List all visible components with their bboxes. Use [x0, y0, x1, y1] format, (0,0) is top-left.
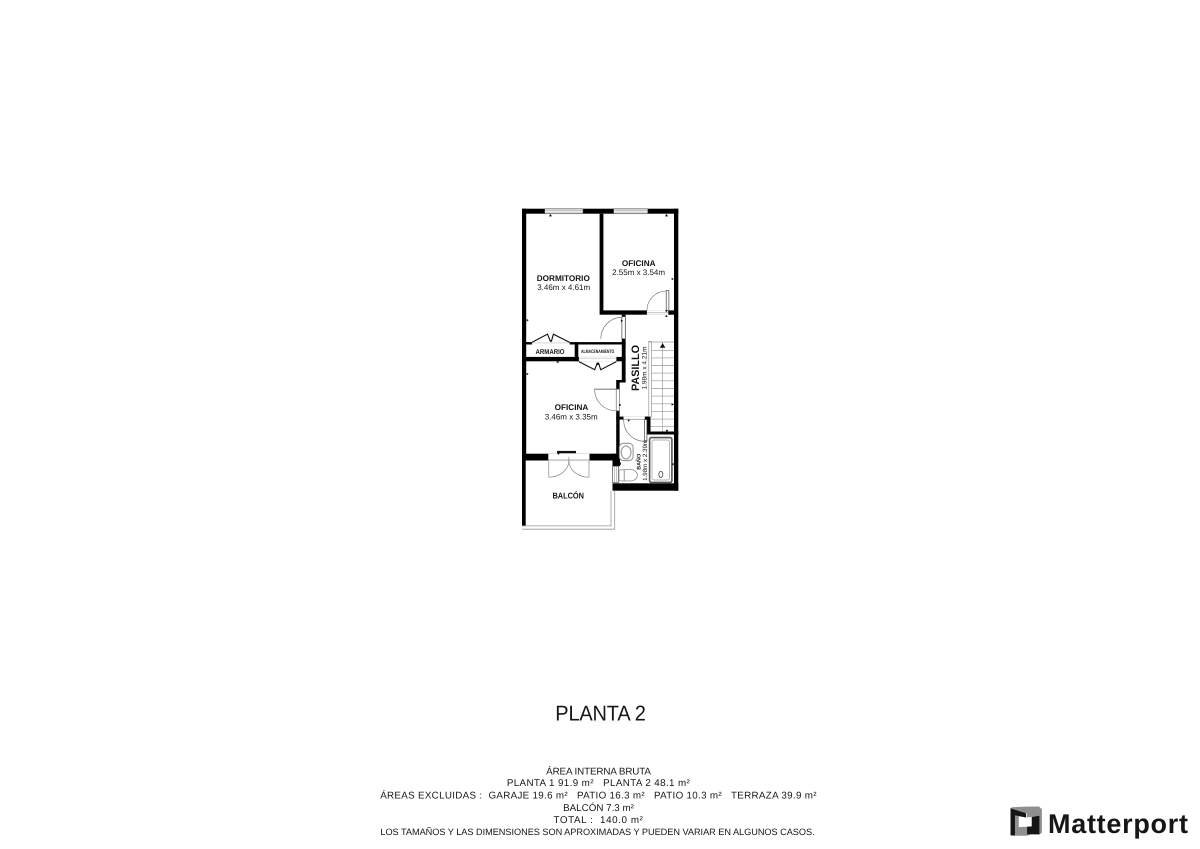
- svg-text:ÁREA INTERNA BRUTA: ÁREA INTERNA BRUTA: [546, 766, 651, 778]
- svg-text:3.46m x 4.61m: 3.46m x 4.61m: [537, 283, 590, 292]
- svg-text:1.98m x 2.39m: 1.98m x 2.39m: [642, 440, 649, 481]
- svg-text:BALCÓN: BALCÓN: [552, 490, 584, 500]
- svg-text:LOS TAMAÑOS Y LAS DIMENSIONES: LOS TAMAÑOS Y LAS DIMENSIONES SON APROXI…: [380, 826, 814, 837]
- svg-text:ALMACENAMIENTO: ALMACENAMIENTO: [581, 349, 614, 355]
- svg-text:ARMARIO: ARMARIO: [535, 349, 565, 356]
- svg-text:OFICINA: OFICINA: [555, 403, 589, 412]
- svg-text:Matterport: Matterport: [1048, 809, 1189, 839]
- svg-text:TOTAL : 140.0 m²: TOTAL : 140.0 m²: [553, 815, 643, 826]
- svg-text:PASILLO: PASILLO: [630, 345, 642, 391]
- svg-text:DORMITORIO: DORMITORIO: [537, 274, 591, 283]
- svg-text:ÁREAS EXCLUIDAS : GARAJE 19.6: ÁREAS EXCLUIDAS : GARAJE 19.6 m² PATIO 1…: [380, 790, 817, 802]
- svg-text:3.46m x 3.35m: 3.46m x 3.35m: [545, 413, 598, 422]
- svg-text:BALCÓN 7.3 m²: BALCÓN 7.3 m²: [563, 802, 635, 814]
- svg-text:1.98m x 4.21m: 1.98m x 4.21m: [642, 347, 649, 390]
- svg-text:PLANTA 1 91.9 m² PLANTA 2 48: PLANTA 1 91.9 m² PLANTA 2 48.1 m²: [507, 778, 691, 789]
- svg-text:PLANTA 2: PLANTA 2: [555, 702, 645, 726]
- svg-text:2.55m x 3.54m: 2.55m x 3.54m: [612, 268, 665, 277]
- svg-text:OFICINA: OFICINA: [622, 259, 656, 268]
